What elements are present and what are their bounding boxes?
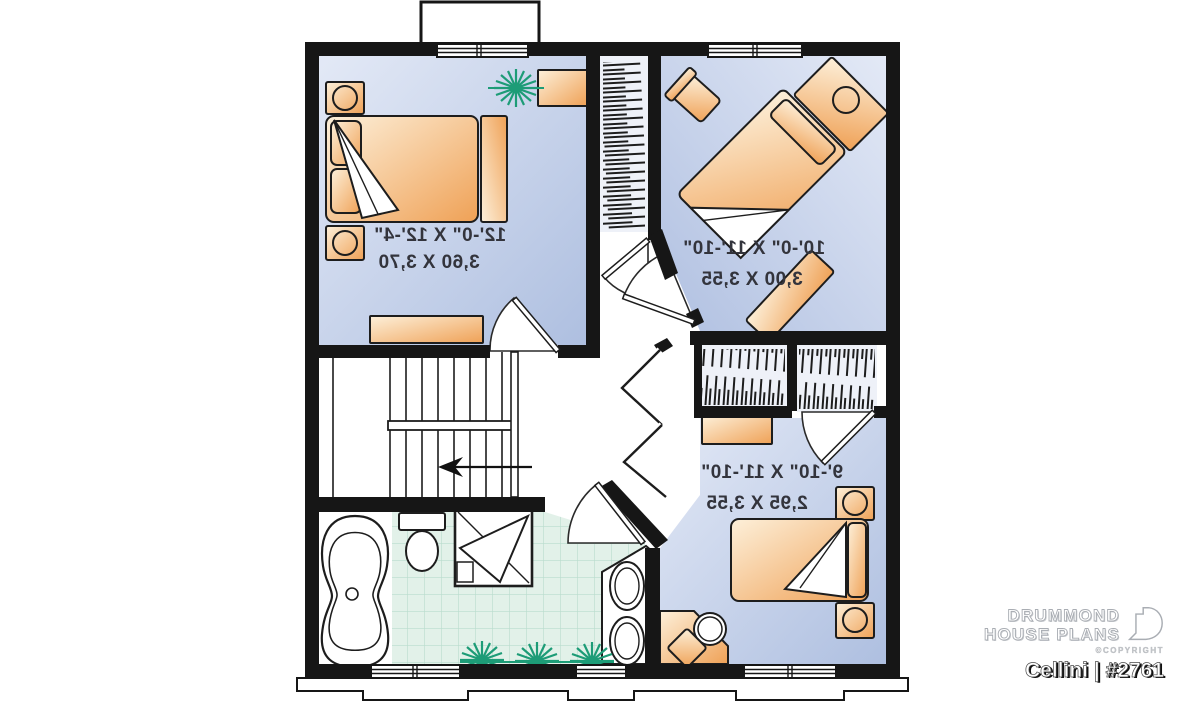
wall — [690, 331, 886, 345]
wall-stub — [874, 406, 886, 418]
brand-line2: HOUSE PLANS — [984, 625, 1120, 644]
window — [576, 665, 626, 678]
shower-bench — [457, 562, 473, 582]
plan-number: #2761 — [1106, 659, 1164, 682]
bedroom-3-dimensions-metric: 2,95 X 3,55 — [706, 493, 808, 515]
drummond-logo-icon — [1126, 604, 1164, 644]
dresser-low — [370, 316, 483, 343]
window — [708, 44, 802, 57]
wall — [645, 548, 660, 666]
brand-wordmark: DRUMMONDHOUSE PLANS — [984, 606, 1120, 644]
plan-title-separator: | — [1094, 659, 1100, 682]
window — [437, 44, 528, 57]
closet-rod-clothes — [603, 62, 645, 230]
floor-plan-page: 12'-0" X 12'-4" 3,60 X 3,70 10'-0" X 11'… — [0, 0, 1200, 711]
dresser — [481, 116, 507, 222]
window — [744, 665, 836, 678]
bedroom-2-dimensions-metric: 3,00 X 3,55 — [701, 269, 803, 291]
bedroom-1-dimensions-imperial: 12'-0" X 12'-4" — [374, 225, 506, 247]
wall — [558, 345, 600, 358]
wall — [694, 345, 702, 408]
cabinet — [538, 70, 587, 106]
dresser-low — [702, 416, 772, 444]
plan-title: Cellini | #2761 — [984, 659, 1164, 683]
bedroom-1-dimensions-metric: 3,60 X 3,70 — [378, 252, 480, 274]
brand-block: DRUMMONDHOUSE PLANS ©COPYRIGHT Cellini |… — [984, 604, 1164, 683]
wall — [305, 345, 490, 358]
wall — [586, 56, 600, 358]
wall — [787, 345, 797, 411]
tub-drain — [346, 588, 358, 600]
toilet-tank — [399, 513, 445, 530]
brand-line1: DRUMMOND — [1007, 606, 1120, 625]
chimney-bumpout — [421, 2, 539, 44]
window — [371, 665, 460, 678]
bedroom-3-dimensions-imperial: 9'-10" X 11'-10" — [701, 462, 843, 484]
wall — [694, 406, 792, 418]
bedroom-2-dimensions-imperial: 10'-0" X 11'-10" — [683, 238, 825, 260]
plan-name: Cellini — [1025, 659, 1088, 682]
stair-handrail — [388, 421, 514, 430]
closet-rod-clothes — [799, 349, 875, 409]
wall — [648, 56, 661, 240]
pillow — [848, 523, 866, 597]
brand-copyright: ©COPYRIGHT — [984, 646, 1164, 655]
closet-rod-clothes — [702, 349, 785, 405]
toilet-bowl — [406, 531, 438, 571]
foundation-outline — [297, 678, 908, 700]
wall — [305, 497, 545, 512]
stair-half-wall — [511, 352, 518, 497]
